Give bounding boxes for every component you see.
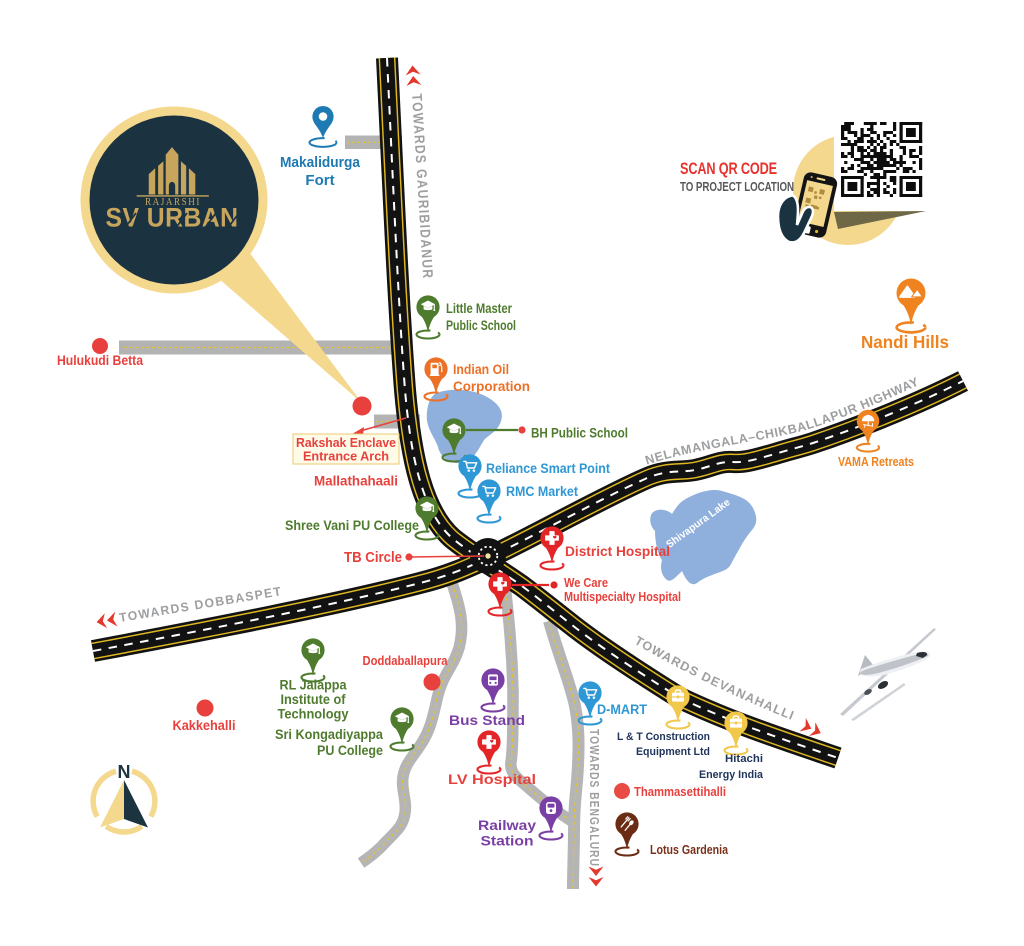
svg-text:TO PROJECT LOCATION: TO PROJECT LOCATION (680, 179, 794, 194)
svg-text:Fort: Fort (305, 172, 334, 189)
svg-text:VAMA Retreats: VAMA Retreats (838, 454, 914, 469)
svg-text:Indian Oil: Indian Oil (453, 362, 509, 378)
svg-text:RL Jalappa: RL Jalappa (280, 678, 347, 693)
svg-text:LV Hospital: LV Hospital (448, 772, 536, 788)
svg-text:Makalidurga: Makalidurga (280, 154, 361, 171)
svg-text:Railway: Railway (478, 818, 536, 834)
svg-text:Kakkehalli: Kakkehalli (173, 718, 236, 734)
svg-text:RMC Market: RMC Market (506, 484, 578, 500)
svg-text:Multispecialty Hospital: Multispecialty Hospital (564, 589, 681, 604)
svg-text:Little Master: Little Master (446, 301, 512, 317)
svg-text:D-MART: D-MART (597, 702, 648, 717)
svg-text:Lotus Gardenia: Lotus Gardenia (650, 842, 728, 857)
svg-text:BH Public School: BH Public School (531, 426, 628, 442)
svg-text:District Hospital: District Hospital (565, 544, 670, 560)
svg-text:Energy India: Energy India (699, 769, 764, 781)
svg-text:Hitachi: Hitachi (725, 753, 763, 765)
svg-text:Hulukudi Betta: Hulukudi Betta (57, 353, 143, 369)
svg-text:Nandi Hills: Nandi Hills (861, 332, 949, 352)
svg-text:Station: Station (481, 834, 534, 850)
svg-text:Public School: Public School (446, 318, 516, 334)
svg-text:PU College: PU College (317, 743, 383, 759)
svg-text:Entrance Arch: Entrance Arch (303, 449, 389, 464)
svg-text:We Care: We Care (564, 575, 608, 590)
svg-text:Corporation: Corporation (453, 379, 530, 395)
svg-text:L & T Construction: L & T Construction (617, 731, 710, 743)
svg-text:Bus Stand: Bus Stand (449, 713, 525, 729)
svg-text:TB Circle: TB Circle (344, 550, 402, 566)
svg-text:Technology: Technology (278, 707, 349, 722)
svg-text:Thammasettihalli: Thammasettihalli (634, 784, 726, 799)
svg-text:Shree Vani PU College: Shree Vani PU College (285, 518, 419, 534)
svg-text:Doddaballapura: Doddaballapura (363, 653, 449, 668)
svg-text:Mallathahaali: Mallathahaali (314, 474, 398, 490)
svg-text:Equipment Ltd: Equipment Ltd (636, 746, 710, 758)
svg-text:TOWARDS BENGALURU: TOWARDS BENGALURU (587, 729, 601, 867)
svg-text:Reliance Smart Point: Reliance Smart Point (486, 461, 610, 477)
svg-text:N: N (118, 762, 131, 782)
svg-text:Sri Kongadiyappa: Sri Kongadiyappa (275, 727, 383, 743)
svg-text:SCAN QR CODE: SCAN QR CODE (680, 159, 777, 178)
svg-text:Institute of: Institute of (281, 692, 346, 707)
